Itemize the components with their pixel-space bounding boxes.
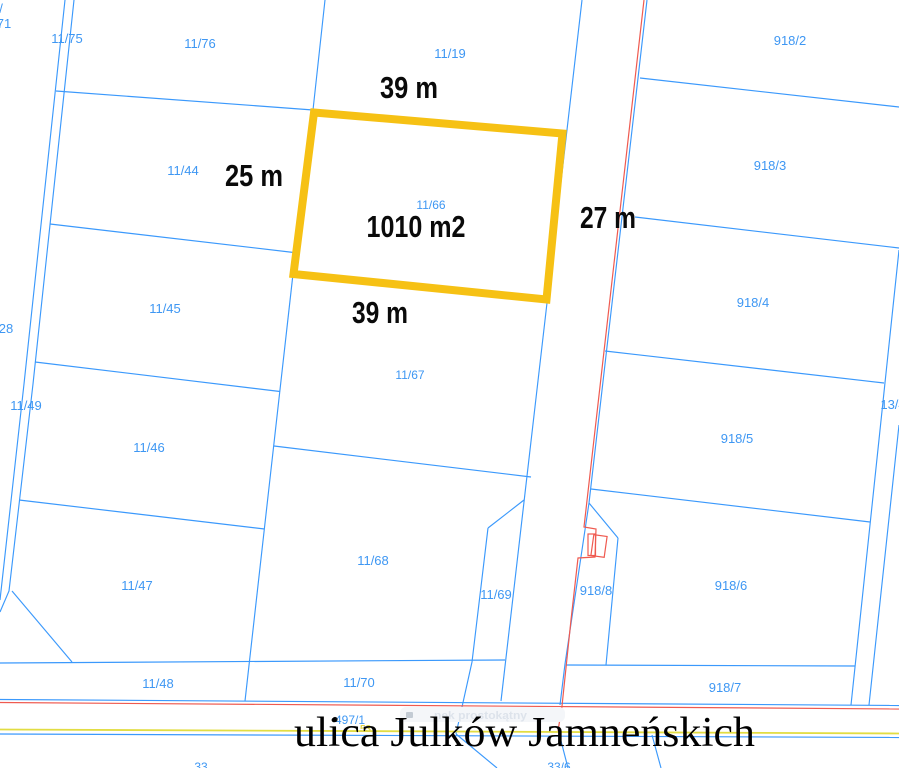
svg-text:/: / (0, 1, 3, 16)
svg-text:27 m: 27 m (580, 200, 636, 235)
svg-text:11/76: 11/76 (184, 36, 216, 51)
svg-text:11/49: 11/49 (10, 398, 42, 413)
svg-text:11/19: 11/19 (434, 46, 466, 61)
svg-text:13/4: 13/4 (880, 397, 899, 412)
svg-text:11/75: 11/75 (51, 31, 83, 46)
svg-text:11/70: 11/70 (343, 675, 375, 690)
svg-text:11/44: 11/44 (167, 163, 199, 178)
svg-text:918/5: 918/5 (721, 431, 754, 446)
svg-text:71: 71 (0, 16, 11, 31)
svg-text:39 m: 39 m (380, 70, 438, 105)
svg-text:ulica Julków Jamneńskich: ulica Julków Jamneńskich (294, 710, 755, 756)
svg-text:11/68: 11/68 (357, 553, 389, 568)
svg-text:918/2: 918/2 (774, 33, 807, 48)
svg-text:33/6: 33/6 (547, 760, 571, 768)
svg-text:11/69: 11/69 (480, 587, 512, 602)
svg-text:39 m: 39 m (352, 295, 408, 330)
svg-text:25 m: 25 m (225, 158, 283, 193)
svg-text:918/7: 918/7 (709, 680, 742, 695)
svg-text:11/67: 11/67 (395, 368, 424, 382)
svg-text:28: 28 (0, 321, 13, 336)
svg-text:918/4: 918/4 (737, 295, 770, 310)
svg-text:918/3: 918/3 (754, 158, 787, 173)
svg-text:918/6: 918/6 (715, 578, 748, 593)
svg-text:11/47: 11/47 (121, 578, 153, 593)
svg-text:11/46: 11/46 (133, 440, 165, 455)
svg-text:11/48: 11/48 (142, 676, 174, 691)
svg-text:11/45: 11/45 (149, 301, 181, 316)
svg-text:1010 m2: 1010 m2 (367, 209, 466, 244)
svg-text:33: 33 (194, 760, 208, 768)
svg-text:918/8: 918/8 (580, 583, 613, 598)
